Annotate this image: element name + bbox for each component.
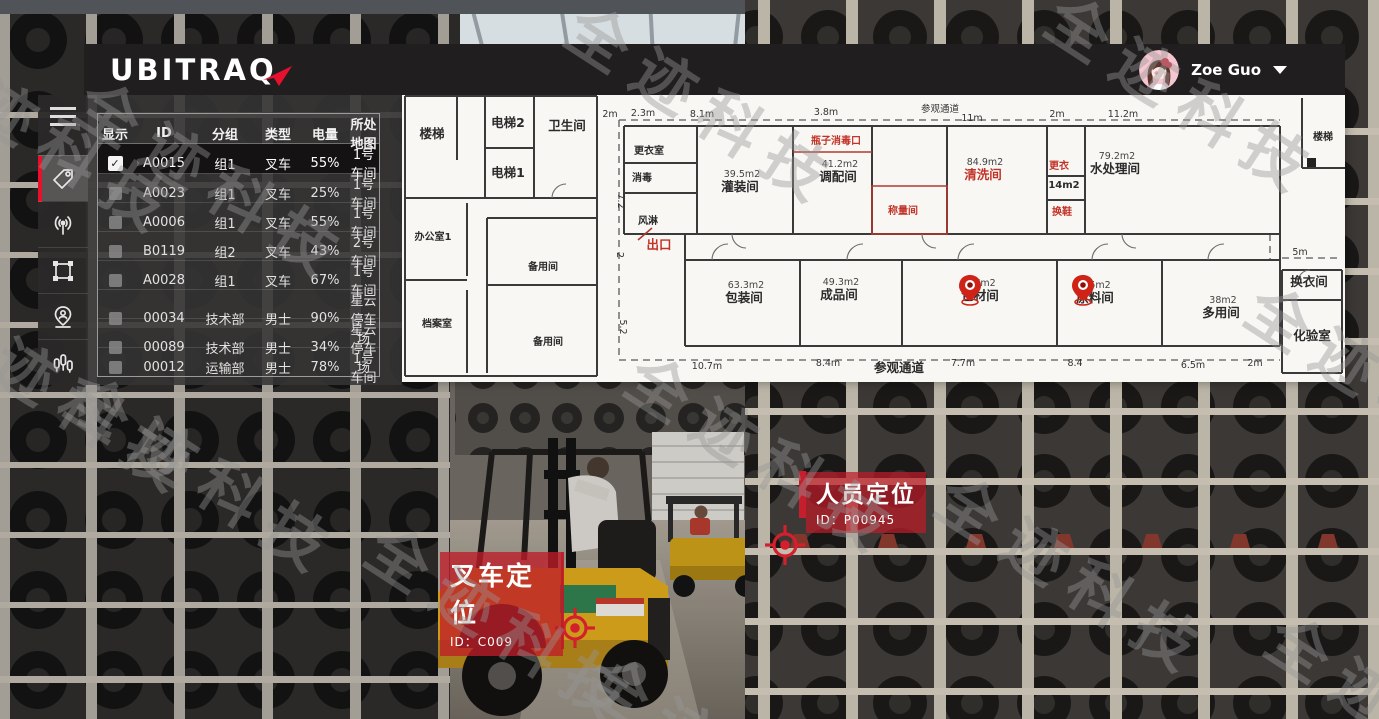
menu-icon[interactable] [50, 107, 76, 127]
table-cell: 55% [302, 156, 348, 171]
floorplan-map[interactable]: 楼梯电梯2电梯1卫生间办公室1备用间档案室备用间更衣室消毒风淋出口39.5m2灌… [402, 88, 1345, 382]
table-cell: 男士 [254, 338, 302, 357]
sidebar-item-zone[interactable] [38, 247, 88, 293]
table-row[interactable]: A0023组1叉车25%1号车间 [98, 173, 379, 202]
person-callout-title: 人员定位 [816, 475, 916, 509]
room-label: 电梯2 [491, 115, 525, 130]
room-label: 更衣室 [634, 144, 664, 157]
measurement-label: 2 [614, 252, 625, 258]
table-cell: 组1 [196, 213, 254, 232]
room-label: 卫生间 [548, 118, 586, 133]
table-cell: 技术部 [196, 309, 254, 328]
sidebar-item-tags[interactable] [38, 155, 88, 201]
table-cell: A0006 [132, 215, 196, 230]
measurement-label: 6.5m [1181, 360, 1205, 371]
table-cell: 00012 [132, 360, 196, 375]
measurement-label: 2m [1247, 358, 1262, 369]
table-cell: 运输部 [196, 358, 254, 377]
checkbox-unchecked[interactable] [109, 361, 122, 374]
room-label: 换衣间 [1290, 274, 1328, 289]
person-callout[interactable]: 人员定位 ID：P00945 [806, 472, 926, 533]
left-panel: 显示ID分组类型电量所处地图 ✓A0015组1叉车55%1号车间A0023组1叉… [38, 95, 402, 385]
checkbox-unchecked[interactable] [109, 312, 122, 325]
table-row[interactable]: A0028组1叉车67%1号车间 [98, 260, 379, 289]
measurement-label: 8.4 [1067, 358, 1082, 369]
sidebar-item-signal[interactable] [38, 201, 88, 247]
target-crosshair-icon[interactable] [763, 523, 807, 567]
table-cell: 25% [302, 186, 348, 201]
table-cell: 1号车间 [348, 348, 379, 386]
room-label: 办公室1 [415, 230, 452, 243]
room-label: 水处理间 [1090, 161, 1140, 176]
forklift-callout-title: 叉车定位 [450, 556, 553, 630]
measurement-label: 11m [961, 113, 982, 124]
room-label: 参观通道 [874, 360, 925, 375]
measurement-label: 10.7m [692, 361, 722, 372]
table-cell: 34% [302, 340, 348, 355]
room-label: 化验室 [1293, 328, 1331, 343]
sidebar-item-statistics[interactable] [38, 339, 88, 385]
room-label: 更衣 [1049, 159, 1069, 172]
tag-icon [50, 166, 76, 192]
room-label: 楼梯 [1313, 130, 1333, 143]
table-cell: 00034 [132, 311, 196, 326]
top-bar: UBITRAQ Zoe Guo [84, 44, 1345, 95]
column-header: 电量 [302, 124, 348, 143]
table-cell: A0023 [132, 186, 196, 201]
measurement-label: 8.4m [816, 358, 840, 369]
measurement-label: 2.3m [631, 108, 655, 119]
checkbox-unchecked[interactable] [109, 274, 122, 287]
forklift-callout[interactable]: 叉车定位 ID：C009 [440, 552, 563, 656]
table-row[interactable]: B0119组2叉车43%2号车间 [98, 231, 379, 260]
table-row[interactable]: 00034技术部男士90%星云停车场 [98, 289, 379, 318]
signal-icon [50, 212, 76, 238]
measurement-label: 5.2 [617, 319, 628, 334]
table-cell: 组1 [196, 154, 254, 173]
room-label: 换鞋 [1052, 205, 1072, 218]
room-label: 备用间 [532, 335, 563, 348]
forklift-callout-id: ID：C009 [450, 633, 553, 650]
column-header: 显示 [98, 124, 132, 143]
table-cell: 67% [302, 273, 348, 288]
measurement-label: 2m [602, 109, 617, 120]
checkbox-unchecked[interactable] [109, 187, 122, 200]
table-cell: 叉车 [254, 271, 302, 290]
table-cell: 55% [302, 215, 348, 230]
table-cell: 90% [302, 311, 348, 326]
table-cell: A0028 [132, 273, 196, 288]
room-label: 楼梯 [419, 126, 445, 141]
logo-plane-icon [263, 66, 293, 90]
device-table: 显示ID分组类型电量所处地图 ✓A0015组1叉车55%1号车间A0023组1叉… [97, 113, 380, 377]
room-label: 电梯1 [491, 165, 525, 180]
table-cell: 组2 [196, 242, 254, 261]
person-pin-icon [50, 304, 76, 330]
table-cell: 43% [302, 244, 348, 259]
room-label: 包装间 [724, 290, 763, 305]
column-header: 分组 [196, 124, 254, 143]
room-label: 清洗间 [964, 167, 1002, 182]
user-avatar[interactable] [1139, 50, 1179, 90]
room-label: 灌装间 [720, 179, 759, 194]
table-cell: 00089 [132, 340, 196, 355]
measurement-label: 11.2m [1108, 109, 1138, 120]
column-header: ID [132, 126, 196, 141]
table-cell: 组1 [196, 184, 254, 203]
room-label: 备用间 [527, 260, 558, 273]
table-cell: 男士 [254, 309, 302, 328]
room-label: 多用间 [1202, 305, 1240, 320]
measurement-label: 7.7m [951, 358, 975, 369]
checkbox-unchecked[interactable] [109, 245, 122, 258]
app-logo: UBITRAQ [110, 50, 293, 90]
measurement-label: 8.1m [690, 109, 714, 120]
table-cell: 组1 [196, 271, 254, 290]
table-cell: 叉车 [254, 242, 302, 261]
room-label: 档案室 [421, 317, 452, 330]
checkbox-unchecked[interactable] [109, 341, 122, 354]
checkbox-unchecked[interactable] [109, 216, 122, 229]
zone-icon [50, 258, 76, 284]
room-label: 瓶子消毒口 [811, 134, 861, 147]
room-label: 14m2 [1048, 180, 1079, 191]
room-label: 风淋 [638, 214, 658, 227]
table-cell: 叉车 [254, 213, 302, 232]
chevron-down-icon[interactable] [1273, 66, 1287, 74]
measurement-label: 7.2 [615, 193, 626, 208]
column-header: 类型 [254, 124, 302, 143]
measurement-label: 2m [1049, 109, 1064, 120]
table-cell: 叉车 [254, 154, 302, 173]
table-row[interactable]: ✓A0015组1叉车55%1号车间 [98, 144, 379, 173]
measurement-label: 参观通道 [921, 103, 960, 115]
stats-icon [50, 350, 76, 376]
room-label: 消毒 [632, 171, 652, 184]
table-cell: 78% [302, 360, 348, 375]
device-table-header: 显示ID分组类型电量所处地图 [98, 114, 379, 144]
room-label: 出口 [646, 237, 671, 252]
app-window: UBITRAQ Zoe Guo [0, 0, 1379, 719]
person-callout-bar [799, 471, 806, 518]
map-pin-icon[interactable] [959, 275, 981, 305]
table-cell: 男士 [254, 358, 302, 377]
room-label: 成品间 [820, 287, 858, 302]
table-cell: 技术部 [196, 338, 254, 357]
table-cell: 叉车 [254, 184, 302, 203]
table-cell: A0015 [132, 156, 196, 171]
room-label: 调配间 [819, 169, 857, 184]
room-label: 称量间 [888, 204, 918, 217]
table-row[interactable]: A0006组1叉车55%1号车间 [98, 202, 379, 231]
sidebar [38, 95, 88, 385]
map-pin-icon[interactable] [1072, 275, 1094, 305]
user-name[interactable]: Zoe Guo [1191, 61, 1261, 79]
measurement-label: 5m [1292, 247, 1307, 258]
app-logo-text: UBITRAQ [110, 53, 277, 87]
checkbox-checked[interactable]: ✓ [108, 156, 123, 171]
person-callout-id: ID：P00945 [816, 511, 916, 528]
user-menu[interactable]: Zoe Guo [1139, 50, 1287, 90]
table-cell: B0119 [132, 244, 196, 259]
measurement-label: 3.8m [814, 107, 838, 118]
sidebar-item-person-location[interactable] [38, 293, 88, 339]
